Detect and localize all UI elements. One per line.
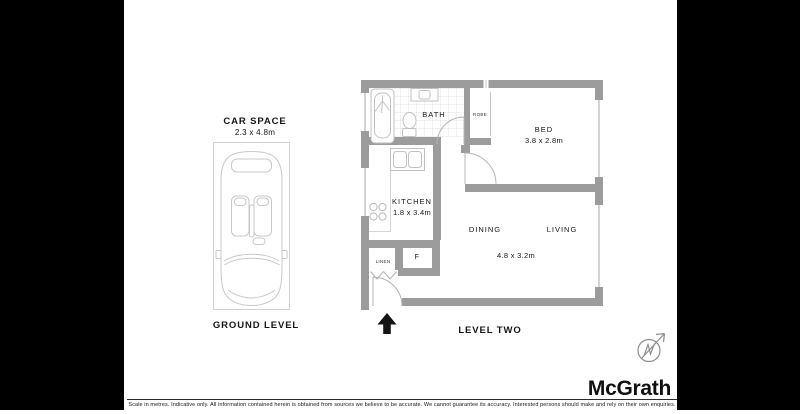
bed-door-arc — [465, 153, 496, 184]
room-label-robe: ROBE — [473, 113, 487, 118]
wall-top — [361, 80, 603, 88]
car-space-title: CAR SPACE — [223, 117, 286, 127]
room-label-linen: LINEN — [376, 260, 391, 265]
kitchen-dimensions: 1.8 x 3.4m — [393, 209, 431, 217]
entry-arrow-icon — [378, 313, 397, 334]
level-two-caption: LEVEL TWO — [458, 326, 521, 336]
footer-rule — [127, 399, 677, 400]
room-label-bath: BATH — [422, 111, 445, 119]
letterbox-bar-left — [0, 0, 124, 410]
disclaimer-text: Scale in metres. Indicative only. All in… — [127, 402, 677, 409]
vanity-sink — [411, 89, 438, 102]
wall-stub — [461, 145, 470, 153]
floorplan-page: CAR SPACE 2.3 x 4.8m GROUND LEVEL BATH R… — [0, 0, 800, 414]
wall-cupboard-top — [369, 240, 440, 248]
entry-door-arc — [373, 277, 402, 306]
ground-level-caption: GROUND LEVEL — [213, 321, 299, 331]
mcgrath-logo: McGrath — [588, 377, 671, 401]
wall-bed-bottom — [465, 184, 603, 192]
living-dining-dimensions: 4.8 x 3.2m — [497, 252, 535, 260]
compass-north-icon — [638, 334, 665, 362]
room-label-dining: DINING — [469, 226, 501, 234]
room-label-fridge: F — [415, 254, 420, 261]
wall-kitchen-right — [433, 137, 441, 240]
stove-cooktop — [370, 203, 386, 220]
bed-dimensions: 3.8 x 2.8m — [525, 137, 563, 145]
wall-fnook-bottom — [398, 268, 440, 276]
wall-bath-robe — [464, 88, 470, 145]
wall-linen-right — [395, 240, 403, 270]
wall-bottom — [402, 298, 603, 306]
room-label-bed: BED — [535, 126, 553, 134]
linen-bifold-door — [371, 272, 397, 280]
kitchen-counter — [369, 171, 391, 232]
room-label-kitchen: KITCHEN — [392, 198, 432, 206]
kitchen-sink — [391, 149, 425, 171]
letterbox-bar-right — [677, 0, 800, 410]
car-space-outline — [214, 143, 290, 310]
wall-robe-bottom — [464, 138, 491, 145]
car-space-dimensions: 2.3 x 4.8m — [235, 129, 275, 137]
room-label-living: LIVING — [547, 226, 578, 234]
toilet — [403, 113, 417, 137]
